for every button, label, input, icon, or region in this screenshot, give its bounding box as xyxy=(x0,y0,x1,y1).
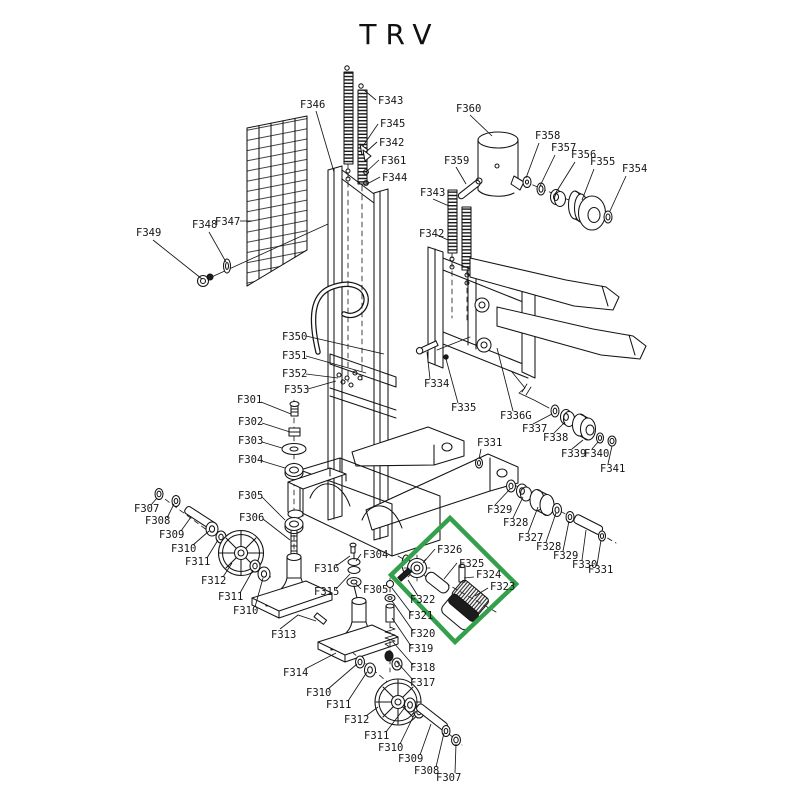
part-label: F351 xyxy=(282,350,307,362)
part-label: F307 xyxy=(436,772,461,784)
part-label: F343 xyxy=(420,187,445,199)
part-label: F311 xyxy=(326,699,351,711)
part-label: F313 xyxy=(271,629,296,641)
part-label: F314 xyxy=(283,667,308,679)
part-label: F303 xyxy=(238,435,263,447)
part-label: F310 xyxy=(233,605,258,617)
part-label: F358 xyxy=(535,130,560,142)
part-label: F309 xyxy=(159,529,184,541)
part-label: F328 xyxy=(503,517,528,529)
part-label: F306 xyxy=(239,512,264,524)
part-label: F317 xyxy=(410,677,435,689)
part-label: F361 xyxy=(381,155,406,167)
part-label: F354 xyxy=(622,163,647,175)
part-label: F302 xyxy=(238,416,263,428)
part-label: F305 xyxy=(238,490,263,502)
part-label: F331 xyxy=(477,437,502,449)
part-label: F334 xyxy=(424,378,449,390)
part-label: F319 xyxy=(408,643,433,655)
part-label: F343 xyxy=(378,95,403,107)
part-label: F338 xyxy=(543,432,568,444)
part-label: F310 xyxy=(306,687,331,699)
part-label: F312 xyxy=(201,575,226,587)
part-label: F311 xyxy=(185,556,210,568)
part-label: F349 xyxy=(136,227,161,239)
part-label: F322 xyxy=(410,594,435,606)
part-label: F305 xyxy=(363,584,388,596)
part-label: F304 xyxy=(238,454,263,466)
part-label: F316 xyxy=(314,563,339,575)
diagram-title: TRV xyxy=(358,18,440,51)
part-label: F342 xyxy=(419,228,444,240)
part-label: F308 xyxy=(145,515,170,527)
part-label: F311 xyxy=(218,591,243,603)
part-label: F307 xyxy=(134,503,159,515)
part-label: F312 xyxy=(344,714,369,726)
part-label: F331 xyxy=(588,564,613,576)
part-label: F347 xyxy=(215,216,240,228)
part-label: F304 xyxy=(363,549,388,561)
part-label: F335 xyxy=(451,402,476,414)
diagram-svg: TRV xyxy=(0,0,800,800)
part-label: F336G xyxy=(500,410,532,422)
part-label: F353 xyxy=(284,384,309,396)
part-label: F323 xyxy=(490,581,515,593)
part-label: F359 xyxy=(444,155,469,167)
part-label: F310 xyxy=(171,543,196,555)
part-label: F360 xyxy=(456,103,481,115)
part-label: F342 xyxy=(379,137,404,149)
part-label: F346 xyxy=(300,99,325,111)
part-label: F326 xyxy=(437,544,462,556)
part-label: F309 xyxy=(398,753,423,765)
part-label: F311 xyxy=(364,730,389,742)
part-label: F340 xyxy=(584,448,609,460)
part-label: F348 xyxy=(192,219,217,231)
part-label: F324 xyxy=(476,569,501,581)
part-label: F352 xyxy=(282,368,307,380)
part-label: F301 xyxy=(237,394,262,406)
part-label: F345 xyxy=(380,118,405,130)
part-label: F339 xyxy=(561,448,586,460)
part-label: F318 xyxy=(410,662,435,674)
part-label: F320 xyxy=(410,628,435,640)
part-label: F329 xyxy=(487,504,512,516)
part-label: F321 xyxy=(408,610,433,622)
part-label: F350 xyxy=(282,331,307,343)
part-label: F315 xyxy=(314,586,339,598)
part-label: F341 xyxy=(600,463,625,475)
part-label: F344 xyxy=(382,172,407,184)
part-label: F355 xyxy=(590,156,615,168)
